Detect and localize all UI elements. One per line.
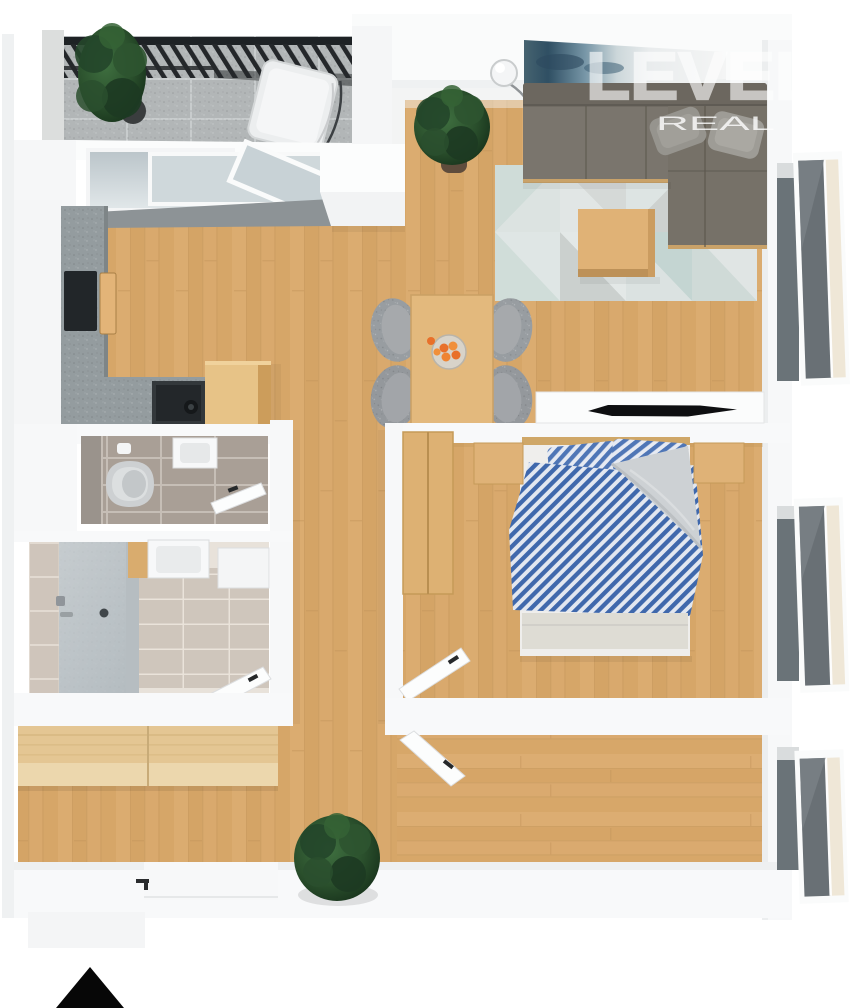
svg-text:REAL: REAL (656, 114, 775, 135)
svg-text:LEVEL: LEVEL (586, 39, 819, 114)
